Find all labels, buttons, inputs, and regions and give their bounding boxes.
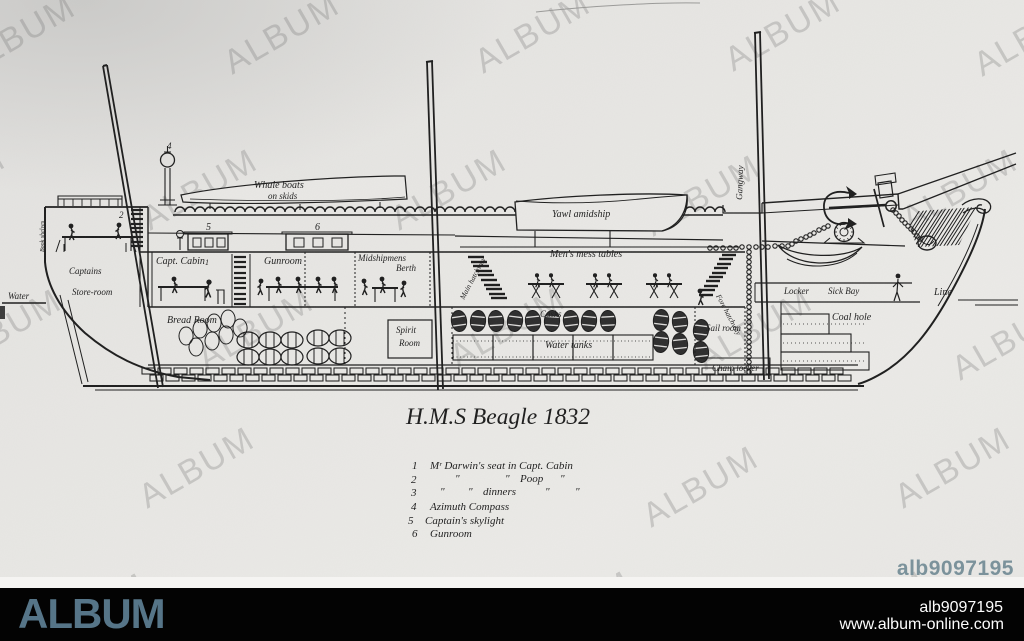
svg-text:2: 2: [119, 210, 124, 220]
svg-text:Berth: Berth: [396, 263, 416, 273]
svg-text:": ": [545, 486, 550, 498]
svg-text:Water: Water: [8, 291, 30, 301]
svg-text:Line: Line: [933, 287, 952, 298]
svg-text:4: 4: [167, 141, 172, 151]
svg-text:Coal hole: Coal hole: [832, 312, 872, 323]
svg-text:Locker: Locker: [783, 286, 809, 296]
svg-text:Men's mess tables: Men's mess tables: [549, 249, 622, 260]
svg-text:4: 4: [411, 501, 417, 513]
svg-text:1: 1: [412, 460, 418, 472]
svg-text:Water tanks: Water tanks: [545, 340, 592, 351]
svg-text:Whale boats: Whale boats: [254, 180, 304, 191]
svg-text:Gangway: Gangway: [734, 165, 745, 200]
svg-text:Captains: Captains: [69, 266, 102, 276]
svg-text:dinners: dinners: [483, 486, 516, 498]
svg-text:Midshipmens: Midshipmens: [357, 253, 406, 263]
svg-text:on skids: on skids: [268, 191, 298, 201]
svg-text:1: 1: [205, 258, 209, 267]
svg-text:": ": [560, 473, 565, 485]
svg-text:6: 6: [412, 528, 418, 540]
svg-text:Book shelves: Book shelves: [40, 220, 46, 252]
svg-text:Gunroom: Gunroom: [430, 528, 472, 540]
svg-text:Capt. Cabin: Capt. Cabin: [156, 256, 205, 267]
svg-text:": ": [440, 486, 445, 498]
svg-text:Room: Room: [398, 338, 420, 348]
svg-text:Chain locker: Chain locker: [712, 363, 759, 373]
svg-text:Azimuth Compass: Azimuth Compass: [429, 501, 509, 513]
svg-text:": ": [468, 486, 473, 498]
svg-text:H.M.S Beagle 1832: H.M.S Beagle 1832: [405, 404, 590, 430]
svg-text:": ": [505, 473, 510, 485]
svg-text:": ": [455, 473, 460, 485]
svg-text:Yawl amidship: Yawl amidship: [552, 209, 610, 220]
svg-text:5: 5: [408, 515, 414, 527]
svg-text:Gunroom: Gunroom: [264, 256, 302, 267]
svg-text:Mʳ Darwin's seat in Capt. Cabi: Mʳ Darwin's seat in Capt. Cabin: [429, 460, 573, 472]
svg-text:6: 6: [315, 222, 320, 233]
svg-text:Casks: Casks: [540, 309, 562, 319]
svg-text:Bread Room: Bread Room: [167, 315, 217, 326]
svg-text:": ": [575, 486, 580, 498]
svg-text:Store-room: Store-room: [72, 287, 113, 297]
svg-text:Poop: Poop: [519, 473, 544, 485]
svg-text:Captain's skylight: Captain's skylight: [425, 515, 505, 527]
svg-text:2: 2: [411, 474, 417, 486]
svg-text:Spirit: Spirit: [396, 325, 417, 335]
svg-text:Sick Bay: Sick Bay: [828, 286, 859, 296]
svg-text:5: 5: [206, 222, 211, 233]
svg-text:Sail room: Sail room: [706, 323, 741, 333]
svg-text:3: 3: [410, 487, 417, 499]
